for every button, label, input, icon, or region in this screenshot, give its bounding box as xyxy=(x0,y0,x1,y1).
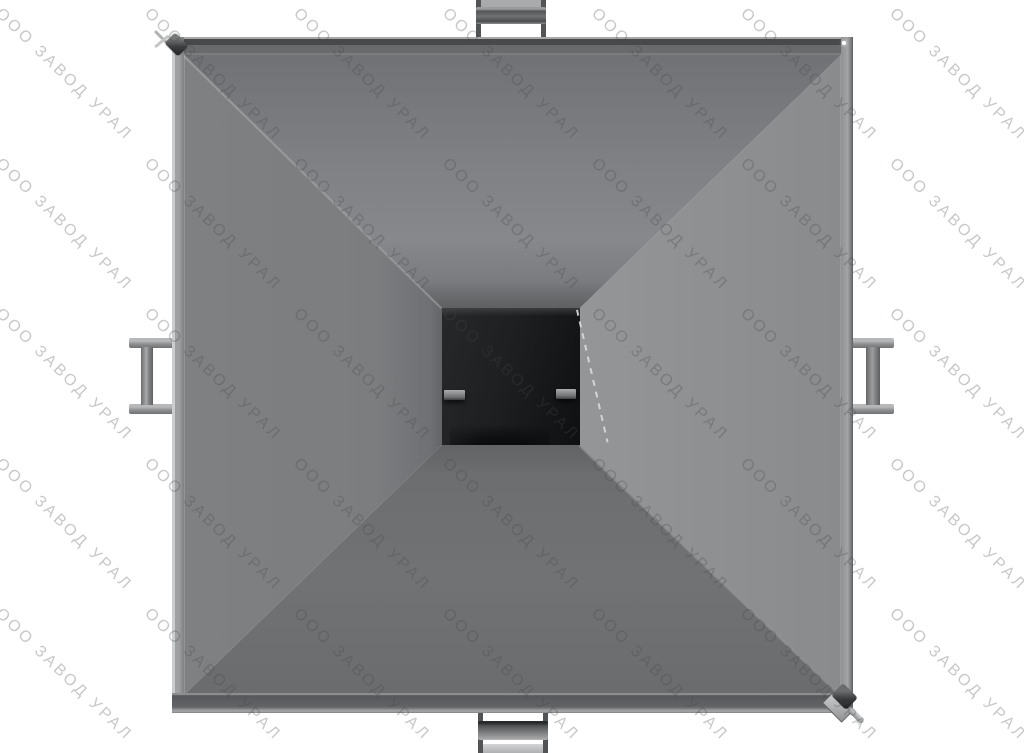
handle-right-flange-bottom xyxy=(848,404,894,414)
watermark-text: ООО ЗАВОД УРАЛ xyxy=(0,605,136,745)
handle-bottom-far-bar xyxy=(483,744,543,753)
watermark-text: ООО ЗАВОД УРАЛ xyxy=(0,455,136,595)
handle-bottom-crossbar xyxy=(478,721,548,740)
hopper-body xyxy=(172,37,853,713)
watermark-text: ООО ЗАВОД УРАЛ xyxy=(0,155,136,295)
watermark-text: ООО ЗАВОД УРАЛ xyxy=(0,305,136,445)
watermark-text: ООО ЗАВОД УРАЛ xyxy=(885,605,1024,745)
watermark-text: ООО ЗАВОД УРАЛ xyxy=(885,305,1024,445)
handle-right-barrel xyxy=(866,347,880,405)
rim-top xyxy=(172,37,853,55)
rim-right xyxy=(841,37,853,713)
product-render-stage: ООО ЗАВОД УРАЛООО ЗАВОД УРАЛООО ЗАВОД УР… xyxy=(0,0,1024,753)
watermark-text: ООО ЗАВОД УРАЛ xyxy=(885,455,1024,595)
corner-pin-bottom-right-shaft xyxy=(847,706,865,724)
handle-left-flange-bottom xyxy=(129,404,174,414)
handle-top-crossbar xyxy=(476,7,546,24)
highlight-speck xyxy=(842,41,846,45)
handle-left-barrel xyxy=(141,347,153,405)
outlet-inner-lip xyxy=(442,308,580,316)
watermark-text: ООО ЗАВОД УРАЛ xyxy=(0,5,136,145)
rim-left xyxy=(172,37,184,713)
watermark-text: ООО ЗАВОД УРАЛ xyxy=(885,5,1024,145)
outlet-opening xyxy=(442,308,580,445)
rim-bottom xyxy=(172,693,853,713)
outlet-bottom-shadow xyxy=(450,419,550,445)
handle-top-far-bar xyxy=(481,0,541,7)
outlet-peg-left xyxy=(444,390,465,400)
watermark-text: ООО ЗАВОД УРАЛ xyxy=(885,155,1024,295)
outlet-peg-right xyxy=(556,389,576,399)
